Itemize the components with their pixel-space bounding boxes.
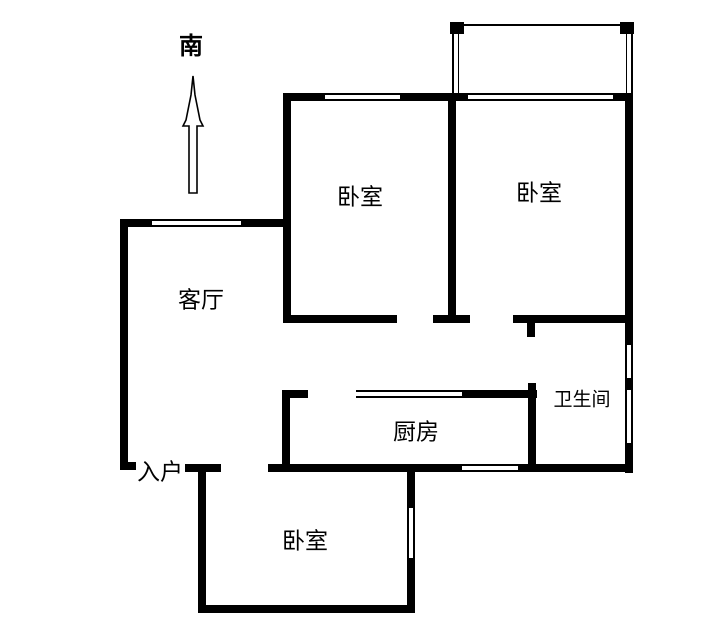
- bedroom-middle-label: 卧室: [337, 186, 383, 209]
- wall-bathroom-door-stub: [527, 323, 535, 337]
- wall-living-bottom-cap: [120, 462, 136, 470]
- bay-window-inner-line: [458, 27, 459, 96]
- wall-bottom-main-left: [268, 464, 462, 472]
- window-bedroom-middle-top: [325, 93, 400, 101]
- wall-bottom-main-right: [518, 464, 633, 472]
- wall-bedroom-divider: [448, 93, 456, 323]
- floor-plan: 南 客厅 卧室 卧室 卧室 厨房: [0, 0, 710, 632]
- wall-hall-stub: [433, 315, 470, 323]
- wall-bedroom-middle-top-right: [400, 93, 468, 101]
- wall-bedroom-bottom-left: [198, 464, 206, 613]
- window-bottom-main: [462, 464, 518, 472]
- window-living-top: [152, 219, 242, 227]
- living-room-label: 客厅: [178, 289, 224, 312]
- wall-outer-right-upper: [625, 93, 633, 345]
- wall-bedroom-right-bottom: [513, 315, 633, 323]
- bay-window-corner-post: [450, 22, 464, 34]
- bathroom-label: 卫生间: [553, 391, 610, 410]
- window-bedroom-bottom-right: [407, 508, 415, 558]
- wall-bedroom-middle-top-left: [283, 93, 325, 101]
- wall-bedroom-bottom-right-lower: [407, 558, 415, 613]
- wall-living-left: [120, 219, 128, 470]
- entrance-label: 入户: [137, 461, 183, 484]
- wall-bedroom-middle-bottom: [283, 315, 397, 323]
- bedroom-bottom-label: 卧室: [282, 530, 328, 553]
- window-bathroom-right-2: [625, 390, 633, 443]
- wall-kitchen-top-right: [462, 390, 537, 398]
- wall-bedroom-bottom-bottom: [198, 605, 415, 613]
- bay-window-inner-line: [626, 27, 627, 96]
- wall-bedroom-middle-left: [283, 93, 291, 323]
- wall-bedroom-bottom-right-upper: [407, 464, 415, 508]
- bay-window-corner-post: [620, 22, 634, 34]
- kitchen-label: 厨房: [393, 421, 439, 444]
- wall-outer-right-mid: [625, 378, 633, 390]
- wall-kitchen-left: [282, 392, 290, 472]
- bedroom-right-label: 卧室: [516, 182, 562, 205]
- window-bedroom-right-top: [468, 93, 613, 101]
- bay-window: [452, 24, 633, 97]
- window-kitchen-top: [356, 390, 462, 398]
- window-bathroom-right-1: [625, 345, 633, 378]
